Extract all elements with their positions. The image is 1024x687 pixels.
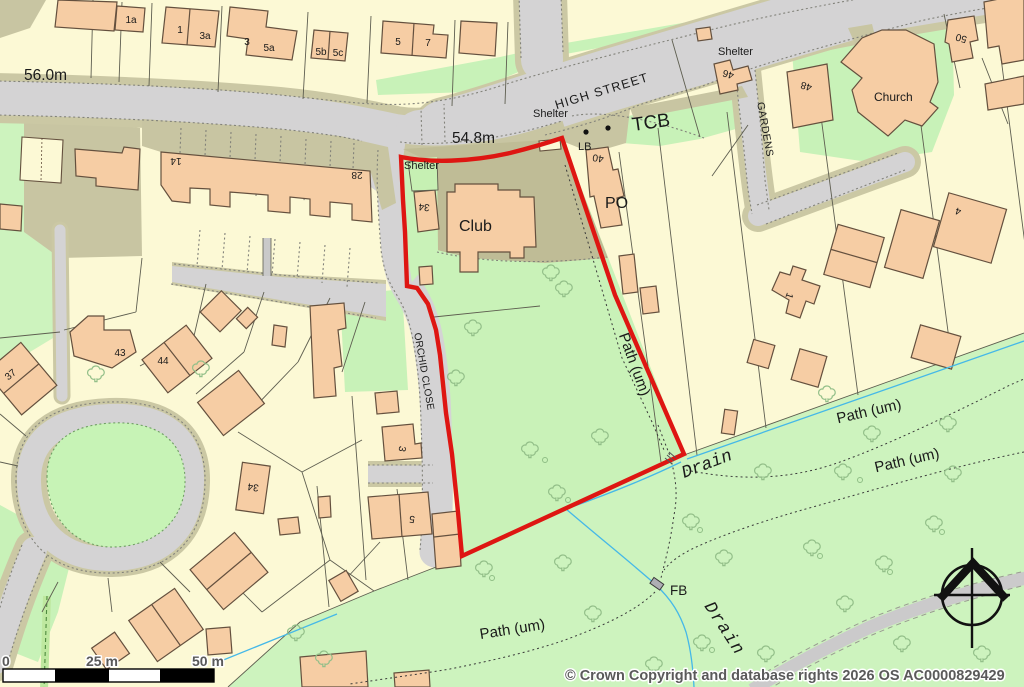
svg-text:40: 40	[592, 151, 605, 164]
svg-text:54.8m: 54.8m	[452, 130, 495, 147]
svg-text:0: 0	[2, 653, 10, 669]
svg-text:28: 28	[351, 169, 363, 180]
svg-text:5a: 5a	[263, 43, 275, 54]
svg-text:1: 1	[177, 25, 183, 36]
svg-text:Shelter: Shelter	[404, 160, 439, 172]
svg-text:34: 34	[247, 480, 260, 493]
svg-text:14: 14	[170, 155, 182, 166]
svg-text:5: 5	[395, 37, 401, 48]
svg-text:© Crown Copyright and database: © Crown Copyright and database rights 20…	[565, 668, 1005, 684]
svg-text:Club: Club	[459, 218, 492, 235]
svg-text:3a: 3a	[199, 31, 211, 42]
svg-text:3: 3	[244, 37, 250, 48]
svg-text:FB: FB	[670, 583, 687, 598]
svg-text:Shelter: Shelter	[718, 46, 753, 58]
svg-text:5c: 5c	[333, 48, 344, 59]
svg-text:50 m: 50 m	[192, 653, 224, 669]
svg-text:7: 7	[425, 38, 431, 49]
svg-text:5b: 5b	[315, 47, 327, 58]
svg-text:LB: LB	[578, 141, 591, 153]
svg-text:1a: 1a	[125, 15, 137, 26]
svg-text:PO: PO	[605, 195, 628, 212]
svg-text:34: 34	[418, 201, 430, 213]
svg-text:Church: Church	[874, 90, 913, 104]
svg-text:44: 44	[157, 356, 169, 367]
svg-text:25 m: 25 m	[86, 653, 118, 669]
svg-text:43: 43	[114, 348, 126, 359]
svg-text:56.0m: 56.0m	[24, 67, 67, 84]
